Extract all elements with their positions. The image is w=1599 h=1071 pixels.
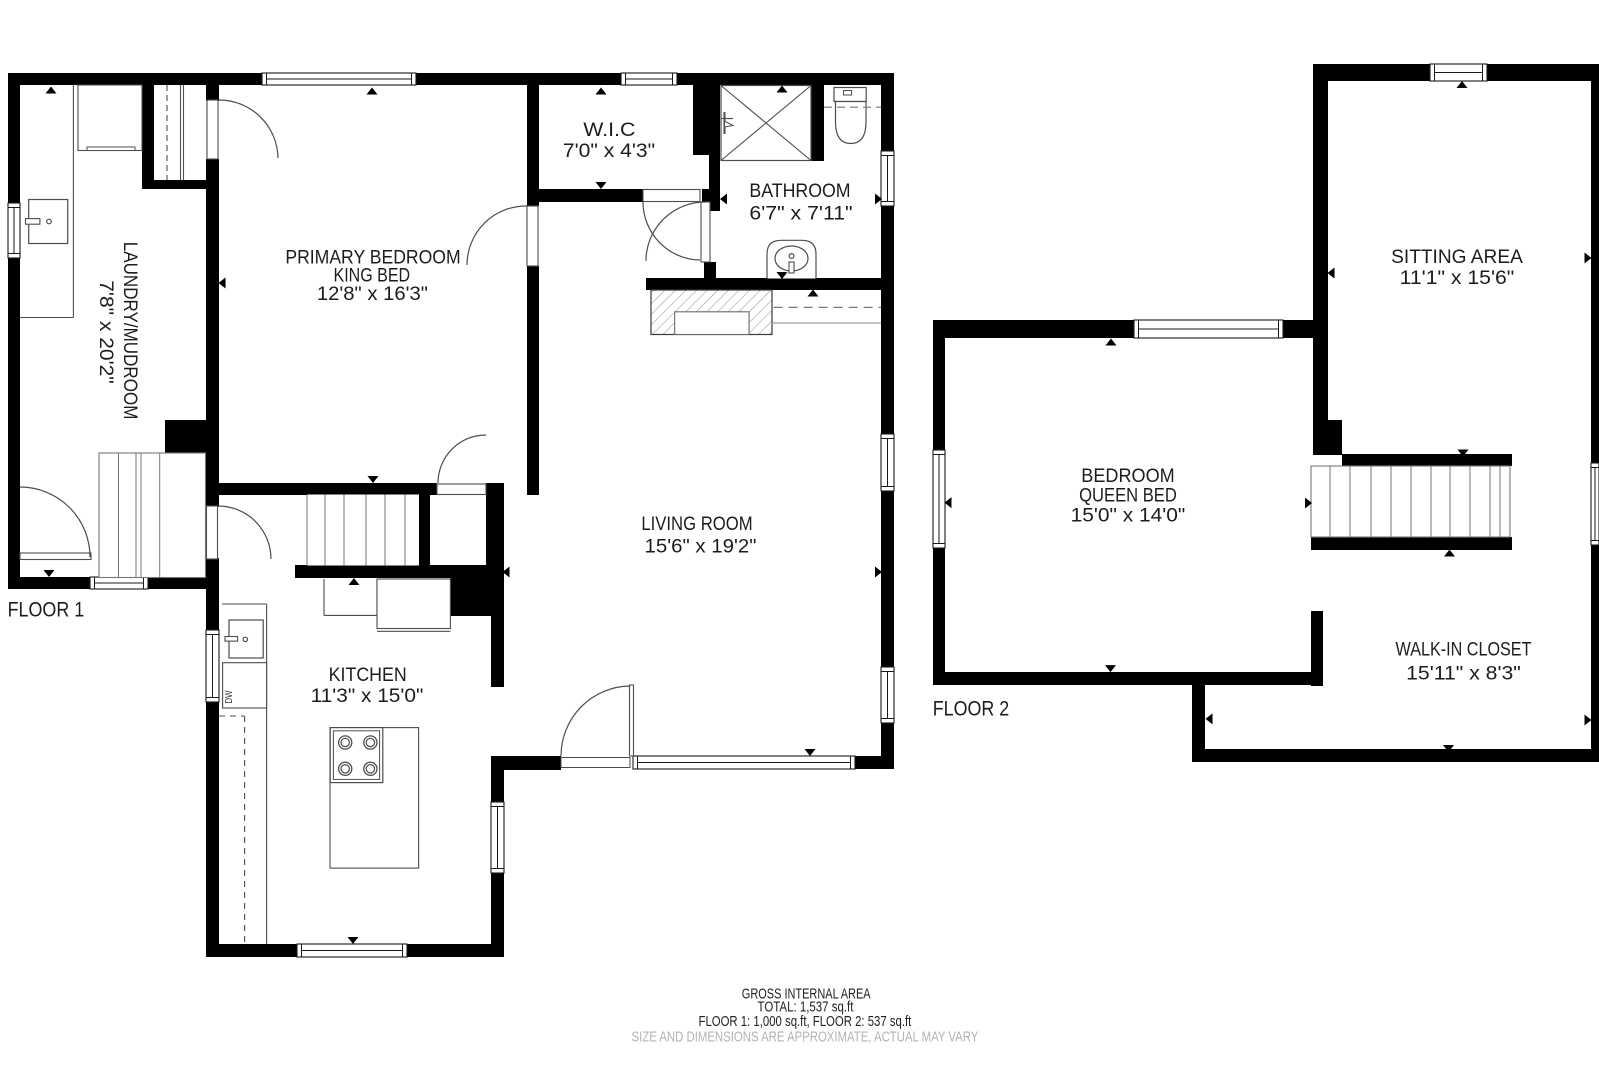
svg-text:15'0" x 14'0": 15'0" x 14'0" <box>1071 506 1186 527</box>
svg-text:15'11" x 8'3": 15'11" x 8'3" <box>1406 663 1521 684</box>
svg-text:KITCHEN: KITCHEN <box>329 665 407 686</box>
svg-text:12'8" x 16'3": 12'8" x 16'3" <box>317 284 428 305</box>
svg-text:BATHROOM: BATHROOM <box>749 181 850 202</box>
svg-text:11'1" x 15'6": 11'1" x 15'6" <box>1400 268 1515 289</box>
svg-text:QUEEN BED: QUEEN BED <box>1079 486 1177 507</box>
svg-text:BEDROOM: BEDROOM <box>1081 466 1174 487</box>
svg-text:WALK-IN CLOSET: WALK-IN CLOSET <box>1396 640 1532 661</box>
svg-text:SIZE AND DIMENSIONS ARE APPROX: SIZE AND DIMENSIONS ARE APPROXIMATE, ACT… <box>632 1029 979 1046</box>
svg-text:LIVING ROOM: LIVING ROOM <box>641 514 752 535</box>
svg-text:7'8" x 20'2": 7'8" x 20'2" <box>95 280 116 384</box>
svg-text:15'6" x 19'2": 15'6" x 19'2" <box>645 537 757 558</box>
svg-text:FLOOR 2: FLOOR 2 <box>933 697 1010 720</box>
svg-text:SITTING AREA: SITTING AREA <box>1391 247 1523 268</box>
svg-text:FLOOR 1: FLOOR 1 <box>8 599 85 622</box>
svg-text:FLOOR 1: 1,000 sq.ft, FLOOR 2:: FLOOR 1: 1,000 sq.ft, FLOOR 2: 537 sq.ft <box>699 1014 912 1030</box>
svg-text:DW: DW <box>224 690 235 703</box>
svg-text:7'0" x 4'3": 7'0" x 4'3" <box>563 141 655 162</box>
svg-text:LAUNDRY/MUDROOM: LAUNDRY/MUDROOM <box>119 242 140 420</box>
svg-text:6'7" x 7'11": 6'7" x 7'11" <box>749 204 852 225</box>
svg-text:11'3" x 15'0": 11'3" x 15'0" <box>311 686 424 707</box>
svg-text:W.I.C: W.I.C <box>583 120 635 141</box>
